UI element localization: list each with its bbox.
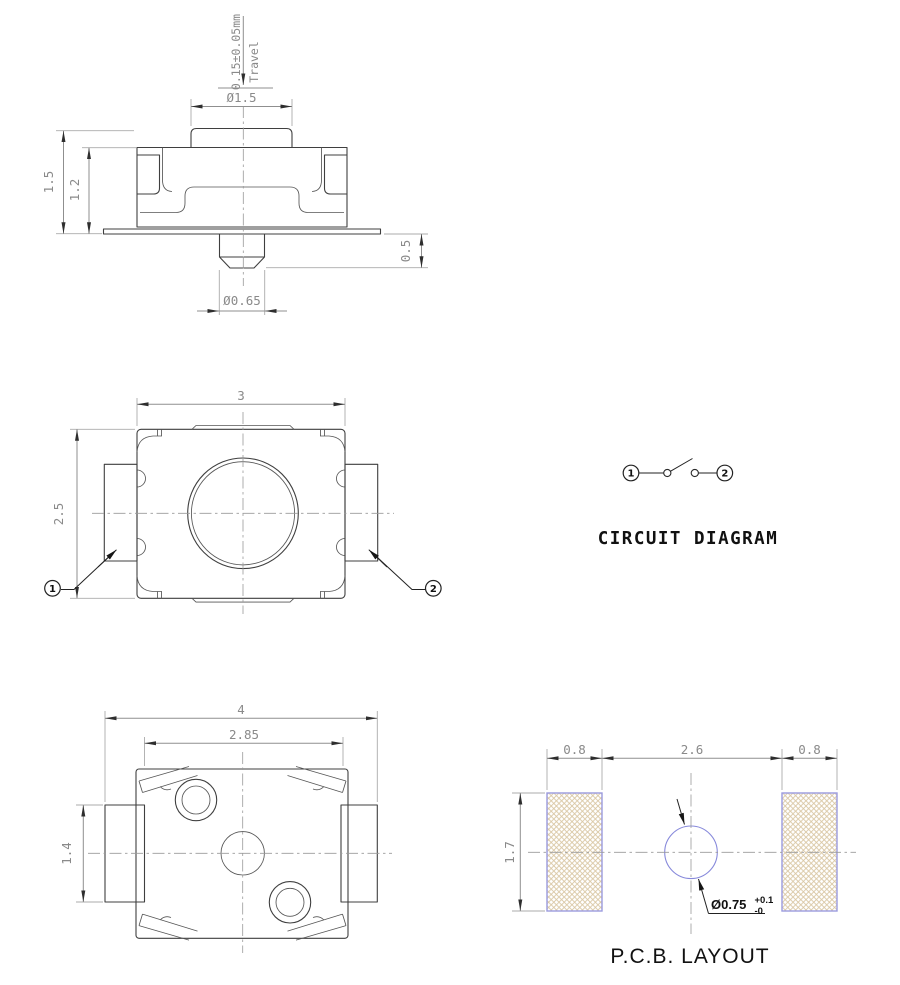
total-height-label: 1.5: [41, 171, 56, 194]
top-depth-label: 2.5: [51, 503, 66, 526]
stem-dia-label: Ø0.65: [223, 293, 261, 308]
terminal-1-number: 1: [49, 584, 56, 595]
mechanical-drawing-svg: 0.15±0.05mm Travel Ø1.5 1.5 1.2 0.5: [0, 0, 900, 985]
top-view-outline: [104, 426, 377, 603]
stem-height-label: 0.5: [398, 240, 413, 263]
top-width-label: 3: [237, 388, 245, 403]
bottom-view: 4 2.85 1.4: [59, 702, 392, 953]
contact-ring-1-inner: [182, 786, 210, 814]
actuator-dia-label: Ø1.5: [226, 90, 256, 105]
pcb-hole-dia-label: Ø0.75: [711, 897, 746, 912]
circuit-terminal-1-number: 1: [628, 469, 635, 480]
circuit-diagram-title: CIRCUIT DIAGRAM: [598, 529, 779, 549]
body-height-label: 1.2: [67, 179, 82, 202]
bottom-dimensions: 4 2.85 1.4: [59, 702, 377, 902]
contact-ring-2-outer: [269, 882, 310, 923]
pcb-layout: 0.8 2.6 0.8 1.7 Ø0.75 +0.1 -0 P.C.B. LAY…: [502, 742, 856, 968]
bottom-overall-width-label: 4: [237, 702, 245, 717]
bottom-body-width-label: 2.85: [229, 727, 259, 742]
pcb-pad-gap-label: 2.6: [681, 742, 704, 757]
terminal-2-pad: [345, 464, 378, 561]
pcb-right-pad-width-label: 0.8: [798, 742, 821, 757]
switch-contact-left: [664, 469, 671, 476]
switch-arm: [671, 459, 693, 472]
side-dimensions: 0.15±0.05mm Travel Ø1.5 1.5 1.2 0.5: [41, 14, 428, 315]
top-dimensions: 3 2.5: [51, 388, 345, 598]
circuit-terminal-2-number: 2: [721, 469, 728, 480]
contact-ring-2-inner: [276, 888, 304, 916]
terminal-1-pad: [104, 464, 137, 561]
pcb-hole-callout: Ø0.75 +0.1 -0: [677, 799, 774, 917]
contact-ring-1-outer: [175, 779, 216, 820]
top-view: 3 2.5 1 2: [45, 388, 441, 614]
travel-value: 0.15±0.05mm: [229, 14, 243, 90]
pcb-left-pad-width-label: 0.8: [563, 742, 586, 757]
switch-contact-right: [691, 469, 698, 476]
terminal-2-number: 2: [430, 584, 437, 595]
side-view: 0.15±0.05mm Travel Ø1.5 1.5 1.2 0.5: [41, 14, 428, 315]
bottom-terminal-height-label: 1.4: [59, 842, 74, 865]
pcb-hole-tol-plus: +0.1: [755, 895, 774, 906]
side-view-outline: [104, 129, 381, 269]
drawing-sheet: 0.15±0.05mm Travel Ø1.5 1.5 1.2 0.5: [0, 0, 900, 985]
pcb-hole-tol-minus: -0: [755, 906, 763, 917]
pcb-pad-height-label: 1.7: [502, 841, 517, 864]
pcb-layout-title: P.C.B. LAYOUT: [610, 945, 769, 968]
travel-label: Travel: [247, 41, 261, 83]
circuit-diagram: 1 2 CIRCUIT DIAGRAM: [598, 459, 779, 550]
